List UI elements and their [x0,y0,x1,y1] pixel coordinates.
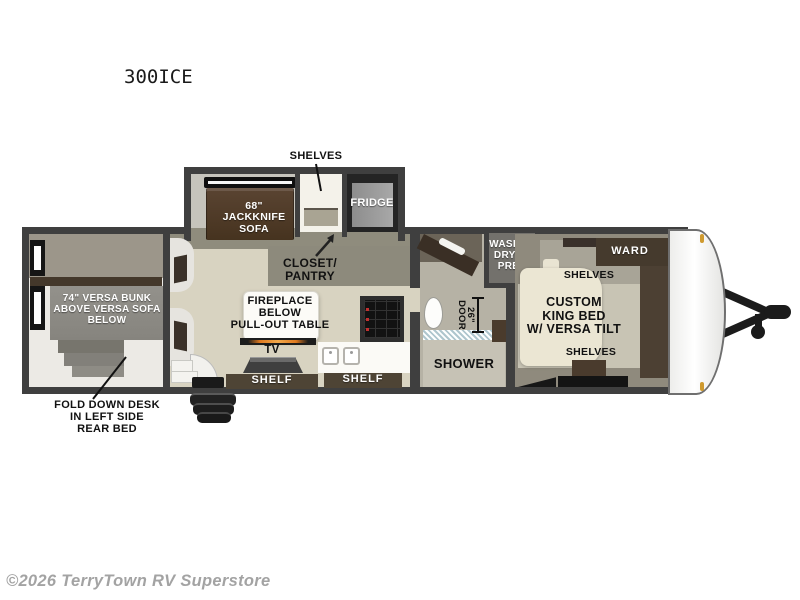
fireplace-flames [248,340,308,343]
entry-steps-outside3 [197,412,231,423]
toilet [424,297,443,329]
island-label: FIREPLACEBELOWPULL-OUT TABLE [231,296,330,332]
stove [364,300,400,338]
fold-down-desk-note: FOLD DOWN DESKIN LEFT SIDEREAR BED [54,400,160,436]
ward-label: WARD [611,246,649,258]
rear-shelf-bar [30,277,162,286]
rear-window-top-glass [34,246,41,270]
bedroom-shelves-top-label: SHELVES [564,270,614,281]
wall-living-bath-top [410,227,420,288]
closet-pantry-label: CLOSET/PANTRY [283,257,337,283]
shelves-top-label: SHELVES [290,151,343,163]
closet-pantry-shelf [304,208,338,226]
rear-room-deck [29,234,163,278]
shower-label: SHOWER [434,357,494,371]
hitch-jack-wheel [751,325,765,339]
floorplan-page: 300ICE 74" VERSA BUNKABOVE VERSA SOFABEL… [0,0,800,600]
front-cap [668,229,726,395]
door-width-label: 26" [465,307,475,323]
entry-door-mat [192,377,224,388]
jackknife-sofa-label: 68"JACKKNIFESOFA [223,201,286,235]
fold-down-desk-steps [58,340,124,353]
hitch-jack-stem [755,314,762,328]
stove-knobs [366,305,369,331]
shelf-left-label: SHELF [251,375,292,387]
hitch-coupler [764,305,791,319]
model-title: 300ICE [124,66,193,88]
wall-bath-bedroom [506,286,515,394]
king-bed-label: CUSTOMKING BEDW/ VERSA TILT [527,296,621,337]
fridge-label: FRIDGE [350,198,393,210]
bedroom-shelves-bottom-label: SHELVES [566,347,616,358]
fold-down-desk-steps2 [64,353,124,366]
marker-light-top [700,234,704,243]
sink-left [322,347,339,365]
tv-label: TV [264,344,279,356]
versa-bunk-label: 74" VERSA BUNKABOVE VERSA SOFABELOW [53,294,160,326]
sofa-window-glass [208,181,292,184]
watermark: ©2026 TerryTown RV Superstore [6,572,270,591]
shelf-right-label: SHELF [342,374,383,386]
sink-right [343,347,360,365]
marker-light-bottom [700,382,704,391]
left-cabinet-bottom-inset [174,321,187,352]
bed-foot-bench [572,360,606,377]
shower-wall-wood [492,320,506,342]
fold-down-desk-steps3 [72,366,124,377]
wall-living-bath-bottom [410,312,420,394]
rear-window-bottom-glass [34,292,41,324]
left-cabinet-top-inset [174,255,187,284]
bedroom-floor-mat [558,376,628,387]
tv-screen-line [250,357,296,362]
sink-left-faucet [329,351,332,354]
sink-right-faucet [350,351,353,354]
